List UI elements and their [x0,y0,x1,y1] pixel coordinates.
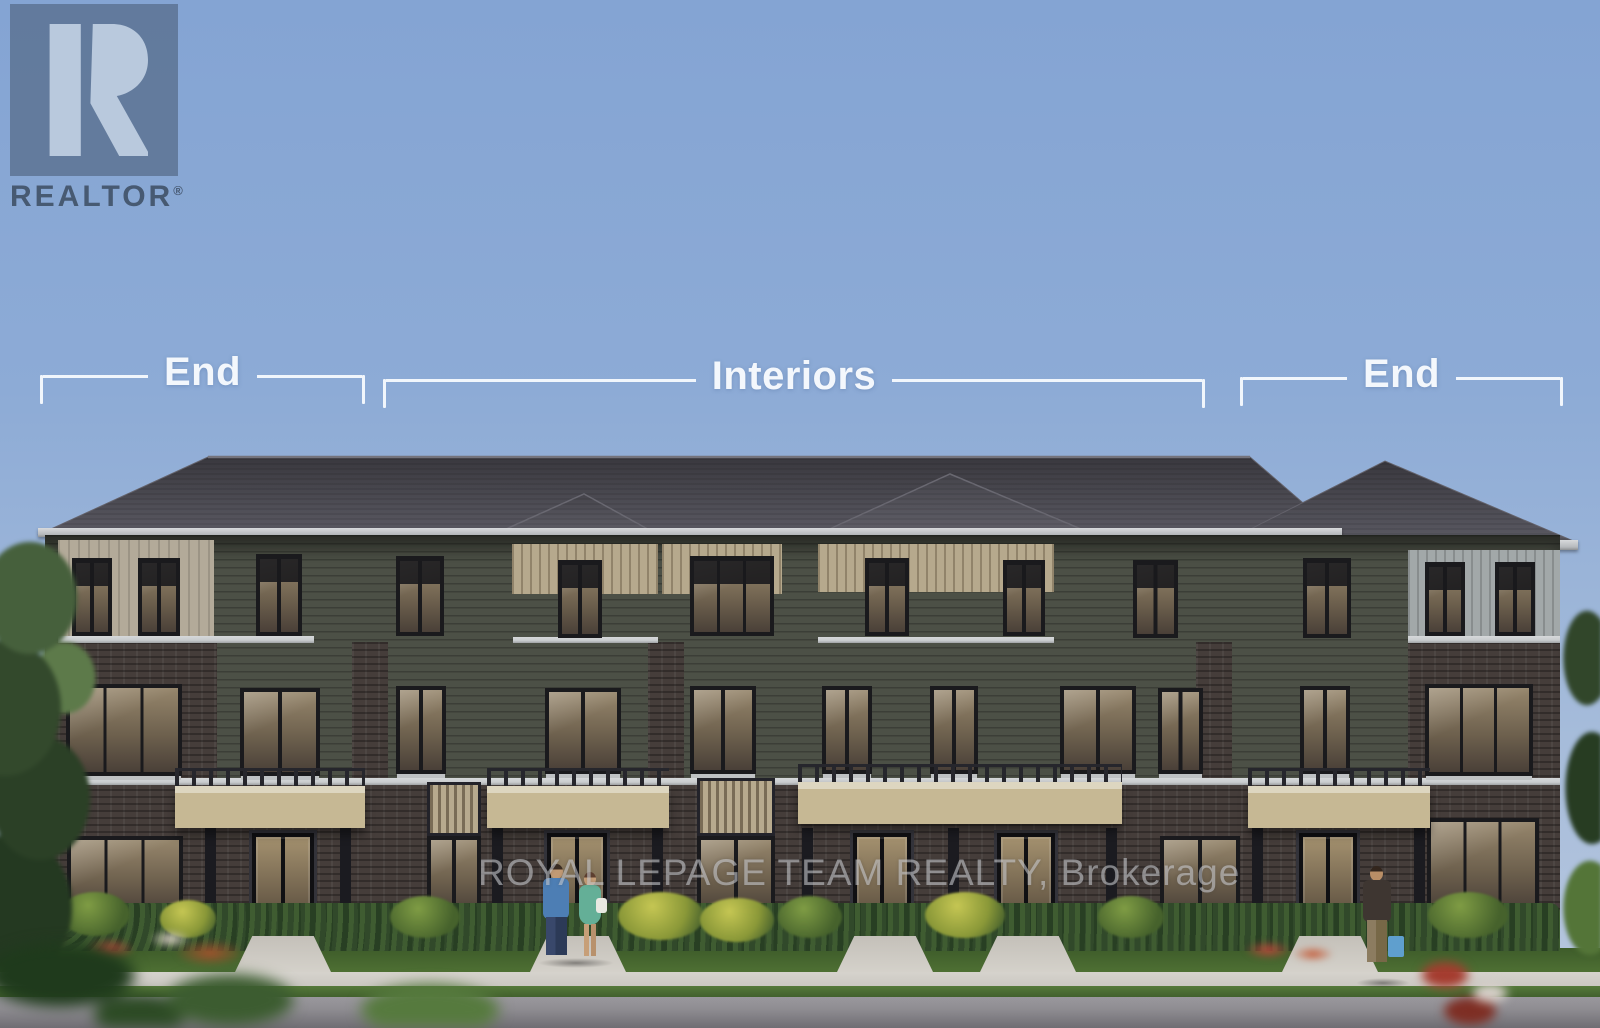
entry-awning [175,768,365,828]
awning-canopy [175,786,365,828]
window [1303,558,1351,638]
foreground-flowers [1400,945,1550,1028]
window [256,554,302,636]
window [1003,560,1045,636]
realtor-logo: REALTOR® [10,4,180,214]
bracket-end-left: End [40,360,365,404]
window-shade-panel [427,782,481,836]
window [1158,688,1203,774]
window [558,560,602,638]
window [865,558,909,636]
pants [1367,920,1387,962]
bracket-tick [1560,377,1563,406]
bracket-tick [383,379,386,408]
shrub [925,892,1005,938]
interiors-label: Interiors [696,356,893,396]
window [1300,686,1350,774]
bracket-line [386,379,696,382]
bracket-end-right: End [1240,362,1563,406]
bracket-tick [1240,377,1243,406]
flower-bed [1238,932,1348,968]
window-shade-panel [697,778,775,836]
bracket-line [257,375,362,378]
jacket [1363,880,1391,922]
window [690,556,774,636]
floor-trim [818,637,1054,643]
awning-canopy [1248,786,1430,828]
floor-trim [1408,636,1560,643]
window [930,686,978,774]
bracket-tick [362,375,365,404]
shrub [1428,892,1508,938]
awning-railing [1248,768,1430,786]
bracket-line [43,375,148,378]
shrub [778,896,842,938]
left-tree [0,528,170,968]
window [1425,684,1533,776]
realtor-logo-label: REALTOR® [10,180,180,214]
bracket-tick [40,375,43,404]
awning-canopy [798,782,1122,824]
awning-railing [175,768,365,786]
brokerage-watermark: ROYAL LEPAGE TEAM REALTY, Brokerage [478,852,1240,894]
awning-railing [798,764,1122,782]
brick-pilaster [352,642,388,784]
window [822,686,872,774]
window [545,688,621,774]
brick-pilaster [648,642,684,784]
right-tree [1542,598,1600,968]
head [1370,866,1383,881]
window [690,686,756,774]
end-right-label: End [1347,354,1456,394]
foreground-foliage [0,905,610,1028]
entry-awning [1248,768,1430,828]
shrub [1098,896,1164,938]
bracket-interiors: Interiors [383,364,1205,408]
window [1060,686,1136,774]
window [396,556,444,636]
bracket-line [1456,377,1560,380]
awning-canopy [487,786,669,828]
entry-awning [487,768,669,828]
bracket-line [1243,377,1347,380]
bracket-tick [1202,379,1205,408]
window [1425,562,1465,636]
window [1495,562,1535,636]
realtor-r-icon [40,24,148,156]
window [1133,560,1178,638]
end-left-label: End [148,352,257,392]
shrub [700,898,774,942]
awning-railing [487,768,669,786]
realtor-logo-mark [10,4,178,176]
entry-awning [798,764,1122,824]
registered-mark: ® [173,183,186,198]
townhouse-elevation-rendering: REALTOR® ROYAL LEPAGE TEAM REALTY, Broke… [0,0,1600,1028]
bracket-line [892,379,1202,382]
shrub [618,892,704,940]
window [240,688,320,776]
window [396,686,446,774]
